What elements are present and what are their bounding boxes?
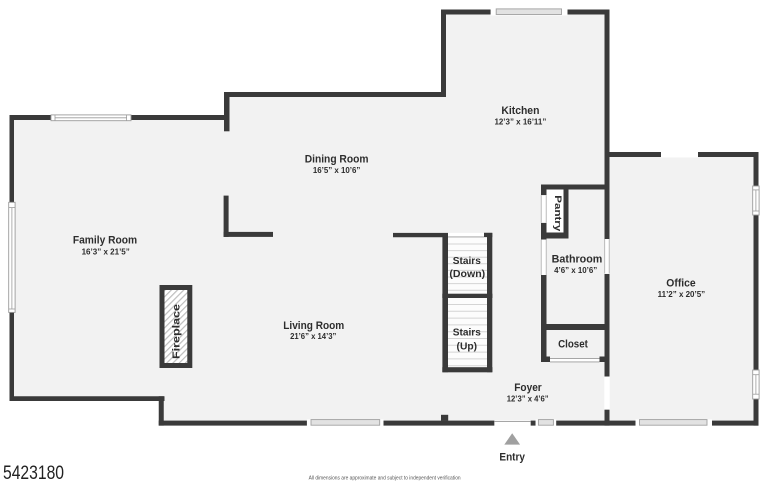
svg-text:Entry: Entry <box>499 452 525 464</box>
svg-text:Pantry: Pantry <box>552 195 563 232</box>
svg-text:Kitchen: Kitchen <box>501 105 539 117</box>
svg-text:21’6” x 14’3”: 21’6” x 14’3” <box>290 332 336 341</box>
svg-text:(Up): (Up) <box>457 341 478 352</box>
svg-text:16’3” x 21’5”: 16’3” x 21’5” <box>82 247 130 256</box>
svg-text:Office: Office <box>666 278 695 290</box>
svg-text:5423180: 5423180 <box>3 463 64 483</box>
svg-text:All dimensions are approximate: All dimensions are approximate and subje… <box>309 475 461 481</box>
svg-text:(Down): (Down) <box>449 269 485 280</box>
svg-text:Foyer: Foyer <box>514 382 542 394</box>
svg-text:Living Room: Living Room <box>283 320 344 332</box>
svg-text:Fireplace: Fireplace <box>171 303 182 359</box>
svg-text:11’2” x 20’5”: 11’2” x 20’5” <box>658 290 706 299</box>
svg-text:4’6” x 10’6”: 4’6” x 10’6” <box>554 266 597 275</box>
svg-text:12’3” x 4’6”: 12’3” x 4’6” <box>507 395 549 404</box>
svg-text:Stairs: Stairs <box>453 328 482 339</box>
svg-text:Stairs: Stairs <box>453 256 482 267</box>
svg-text:Dining Room: Dining Room <box>305 154 369 166</box>
svg-text:16’5” x 10’6”: 16’5” x 10’6” <box>313 166 361 175</box>
svg-text:Closet: Closet <box>558 339 588 351</box>
svg-text:Family Room: Family Room <box>73 235 137 247</box>
svg-text:Bathroom: Bathroom <box>552 253 603 265</box>
svg-text:12’3” x 16’11”: 12’3” x 16’11” <box>494 117 546 126</box>
